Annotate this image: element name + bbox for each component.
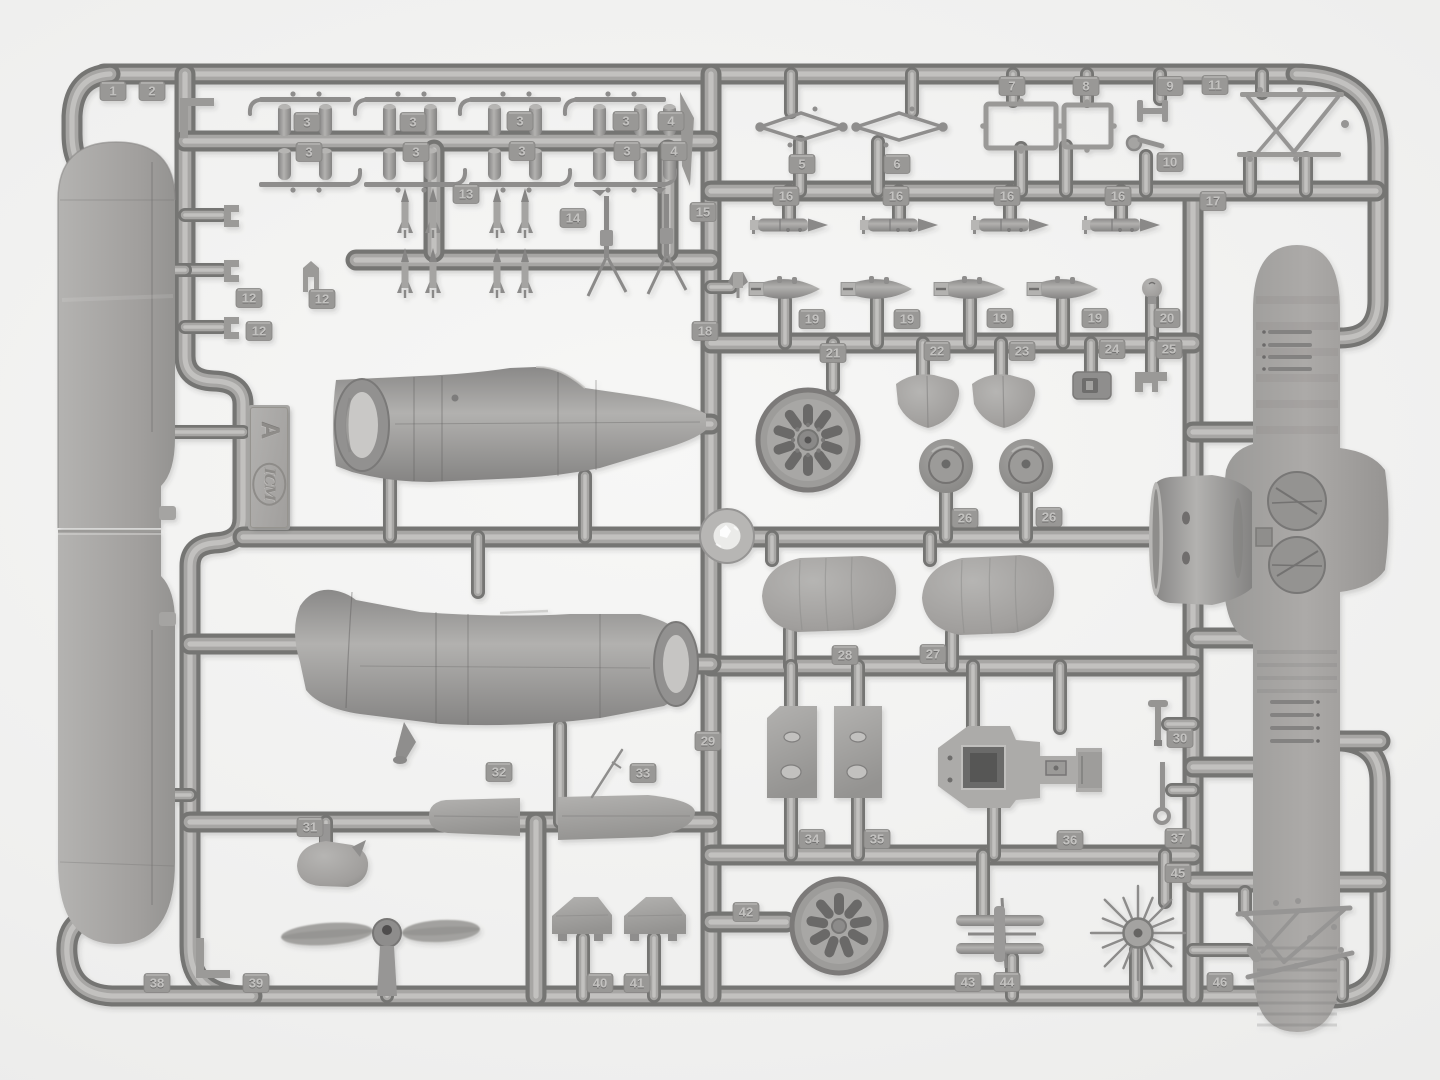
svg-text:5: 5 bbox=[798, 157, 805, 172]
svg-text:1: 1 bbox=[109, 84, 116, 99]
part-number-tag: 66 bbox=[884, 155, 910, 174]
part-number-tag: 1616 bbox=[994, 187, 1020, 206]
svg-text:19: 19 bbox=[805, 312, 819, 327]
bomb-part-19 bbox=[841, 276, 912, 299]
svg-text:36: 36 bbox=[1063, 833, 1077, 848]
svg-text:17: 17 bbox=[1206, 194, 1220, 209]
svg-text:3: 3 bbox=[409, 115, 416, 130]
sprue-frame: 1122333333333333333344441212121212121313… bbox=[0, 0, 1440, 1080]
wing-panel-lower-left bbox=[58, 506, 176, 944]
rocket-part-16 bbox=[971, 216, 1049, 234]
part-number-tag: 1919 bbox=[987, 309, 1013, 328]
part-number-tag: 3030 bbox=[1167, 729, 1193, 748]
svg-text:28: 28 bbox=[838, 648, 852, 663]
svg-text:32: 32 bbox=[492, 765, 506, 780]
engine-cowling bbox=[1149, 475, 1252, 605]
brand-plate: A ICM bbox=[250, 407, 288, 528]
svg-text:4: 4 bbox=[670, 144, 678, 159]
part-number-tag: 11 bbox=[100, 82, 126, 101]
svg-text:26: 26 bbox=[958, 511, 972, 526]
part-number-tag: 4040 bbox=[587, 974, 613, 993]
icm-logo: ICM bbox=[252, 463, 286, 506]
bomb-part-19 bbox=[749, 276, 820, 299]
part-number-tag: 44 bbox=[661, 142, 687, 161]
box-part-24 bbox=[1073, 372, 1111, 399]
part-number-tag: 2323 bbox=[1009, 342, 1035, 361]
svg-text:39: 39 bbox=[249, 976, 263, 991]
part-number-tag: 3434 bbox=[799, 830, 825, 849]
stabilizer-33 bbox=[558, 750, 695, 840]
part-number-tag: 2424 bbox=[1099, 340, 1125, 359]
part-number-tag: 2121 bbox=[820, 344, 846, 363]
svg-text:23: 23 bbox=[1015, 344, 1029, 359]
part-number-tag: 2929 bbox=[695, 732, 721, 751]
part-number-tag: 3333 bbox=[630, 764, 656, 783]
svg-text:3: 3 bbox=[303, 115, 310, 130]
part-number-tag: 1717 bbox=[1200, 192, 1226, 211]
svg-text:16: 16 bbox=[889, 189, 903, 204]
part-number-tag: 3737 bbox=[1165, 829, 1191, 848]
fuselage-half-lower bbox=[295, 590, 698, 764]
cowl-front-42 bbox=[792, 879, 886, 973]
clip-part-25 bbox=[1135, 372, 1167, 392]
svg-text:4: 4 bbox=[667, 114, 675, 129]
windscreen-frame-8 bbox=[1064, 99, 1117, 153]
part-number-tag: 1414 bbox=[560, 209, 586, 228]
svg-text:42: 42 bbox=[739, 905, 753, 920]
svg-text:16: 16 bbox=[779, 189, 793, 204]
svg-text:41: 41 bbox=[630, 976, 644, 991]
svg-text:22: 22 bbox=[930, 344, 944, 359]
part-number-tag: 1616 bbox=[883, 187, 909, 206]
part-number-tag: 3535 bbox=[864, 830, 890, 849]
part-number-tag: 1919 bbox=[799, 310, 825, 329]
svg-text:24: 24 bbox=[1105, 342, 1120, 357]
svg-text:3: 3 bbox=[516, 114, 523, 129]
part-number-tag: 1515 bbox=[690, 203, 716, 222]
svg-text:20: 20 bbox=[1160, 311, 1174, 326]
part-number-tag: 33 bbox=[294, 113, 320, 132]
svg-text:29: 29 bbox=[701, 734, 715, 749]
h-part-9 bbox=[1137, 100, 1168, 122]
part-number-tag: 2626 bbox=[1036, 508, 1062, 527]
rocket-part-16 bbox=[750, 216, 828, 234]
part-number-tag: 22 bbox=[139, 82, 165, 101]
svg-text:3: 3 bbox=[518, 144, 525, 159]
engine-star-45 bbox=[1091, 886, 1185, 980]
cowl-panel-35 bbox=[834, 706, 882, 798]
part-number-tag: 3131 bbox=[297, 818, 323, 837]
svg-text:40: 40 bbox=[593, 976, 607, 991]
svg-text:9: 9 bbox=[1166, 79, 1173, 94]
part-number-tag: 44 bbox=[658, 112, 684, 131]
blister-27 bbox=[922, 555, 1054, 635]
svg-text:33: 33 bbox=[636, 766, 650, 781]
part-number-tag: 1616 bbox=[1105, 187, 1131, 206]
rocket-part-13 bbox=[489, 188, 505, 238]
svg-text:2: 2 bbox=[148, 84, 155, 99]
strut-diamond-6 bbox=[853, 107, 946, 148]
svg-text:38: 38 bbox=[150, 976, 164, 991]
part-number-tag: 1111 bbox=[1202, 76, 1228, 95]
svg-text:43: 43 bbox=[961, 975, 975, 990]
svg-text:15: 15 bbox=[696, 205, 710, 220]
svg-text:12: 12 bbox=[252, 324, 266, 339]
part-number-tag: 4343 bbox=[955, 973, 981, 992]
fuselage-half-upper bbox=[333, 367, 706, 482]
clips-part12 bbox=[224, 205, 319, 339]
wheel-disc-21 bbox=[758, 390, 858, 490]
svg-text:25: 25 bbox=[1162, 342, 1176, 357]
svg-text:26: 26 bbox=[1042, 510, 1056, 525]
wing-panel-upper-left bbox=[58, 142, 175, 528]
part-number-tag: 2222 bbox=[924, 342, 950, 361]
bomb-part-19 bbox=[934, 276, 1005, 299]
part-number-tag: 1010 bbox=[1157, 153, 1183, 172]
part-number-tag: 55 bbox=[789, 155, 815, 174]
part-number-tag: 4646 bbox=[1207, 973, 1233, 992]
svg-text:35: 35 bbox=[870, 832, 884, 847]
svg-text:31: 31 bbox=[303, 820, 317, 835]
part-number-tag: 1313 bbox=[453, 185, 479, 204]
part-number-tag: 2626 bbox=[952, 509, 978, 528]
part-number-tag: 1919 bbox=[1082, 309, 1108, 328]
svg-text:13: 13 bbox=[459, 187, 473, 202]
svg-text:18: 18 bbox=[698, 324, 712, 339]
svg-text:14: 14 bbox=[566, 211, 581, 226]
part-number-tag: 2020 bbox=[1154, 309, 1180, 328]
svg-text:8: 8 bbox=[1082, 79, 1089, 94]
svg-text:3: 3 bbox=[305, 145, 312, 160]
svg-text:3: 3 bbox=[622, 114, 629, 129]
part-number-tag: 33 bbox=[613, 112, 639, 131]
part-number-tag: 1212 bbox=[236, 289, 262, 308]
cowl-panel-34 bbox=[767, 706, 817, 798]
svg-text:45: 45 bbox=[1171, 866, 1185, 881]
rocket-part-16 bbox=[860, 216, 938, 234]
part-number-tag: 33 bbox=[400, 113, 426, 132]
part-number-tag: 3232 bbox=[486, 763, 512, 782]
part-number-tag: 33 bbox=[614, 142, 640, 161]
svg-text:11: 11 bbox=[1208, 78, 1222, 93]
rocket-part-16 bbox=[1082, 216, 1160, 234]
part-number-tag: 1212 bbox=[246, 322, 272, 341]
part-number-tag: 4545 bbox=[1165, 864, 1191, 883]
strut-diamond-5 bbox=[757, 107, 846, 148]
part-number-tag: 33 bbox=[509, 142, 535, 161]
sprue-photo: 1122333333333333333344441212121212121313… bbox=[0, 0, 1440, 1080]
bomb-part-19 bbox=[1027, 276, 1098, 299]
sprue-letter: A bbox=[255, 421, 284, 439]
part-number-tag: 1212 bbox=[309, 290, 335, 309]
part-number-tag: 88 bbox=[1073, 77, 1099, 96]
svg-text:16: 16 bbox=[1000, 189, 1014, 204]
rocket-part-13 bbox=[517, 188, 533, 238]
svg-text:19: 19 bbox=[900, 312, 914, 327]
part-number-tag: 3939 bbox=[243, 974, 269, 993]
cockpit-floor-36 bbox=[938, 726, 1102, 808]
part-number-tag: 33 bbox=[403, 143, 429, 162]
propeller bbox=[280, 918, 480, 996]
part-number-tag: 1616 bbox=[773, 187, 799, 206]
part-number-tag: 2828 bbox=[832, 646, 858, 665]
svg-text:21: 21 bbox=[826, 346, 840, 361]
wheel-part-26 bbox=[999, 439, 1053, 493]
svg-text:44: 44 bbox=[1000, 975, 1015, 990]
wheel-lever-10 bbox=[1127, 136, 1162, 150]
svg-text:3: 3 bbox=[623, 144, 630, 159]
part-number-tag: 1818 bbox=[692, 322, 718, 341]
svg-text:46: 46 bbox=[1213, 975, 1227, 990]
svg-text:27: 27 bbox=[926, 647, 940, 662]
fairing-22 bbox=[896, 374, 959, 428]
svg-text:34: 34 bbox=[805, 832, 820, 847]
part-number-tag: 99 bbox=[1157, 77, 1183, 96]
part-number-tag: 2525 bbox=[1156, 340, 1182, 359]
part-number-tag: 4444 bbox=[994, 973, 1020, 992]
rocket-part-13 bbox=[397, 188, 413, 238]
strut-triangle-11 bbox=[1237, 87, 1349, 162]
part-number-tag: 1919 bbox=[894, 310, 920, 329]
part-number-tag: 33 bbox=[296, 143, 322, 162]
part-number-tag: 4242 bbox=[733, 903, 759, 922]
part-number-tag: 4141 bbox=[624, 974, 650, 993]
svg-text:37: 37 bbox=[1171, 831, 1185, 846]
stabilizer-32 bbox=[429, 798, 520, 836]
blister-28 bbox=[762, 556, 896, 632]
part-number-tag: 3838 bbox=[144, 974, 170, 993]
part-number-tag: 77 bbox=[999, 77, 1025, 96]
svg-text:12: 12 bbox=[242, 291, 256, 306]
svg-text:12: 12 bbox=[315, 292, 329, 307]
part-number-tag: 3636 bbox=[1057, 831, 1083, 850]
svg-text:3: 3 bbox=[412, 145, 419, 160]
svg-text:30: 30 bbox=[1173, 731, 1187, 746]
injection-gate bbox=[700, 509, 754, 563]
svg-text:7: 7 bbox=[1008, 79, 1015, 94]
fairing-23 bbox=[972, 374, 1035, 428]
svg-text:19: 19 bbox=[993, 311, 1007, 326]
part-number-tag: 2727 bbox=[920, 645, 946, 664]
svg-text:10: 10 bbox=[1163, 155, 1177, 170]
svg-text:16: 16 bbox=[1111, 189, 1125, 204]
svg-text:19: 19 bbox=[1088, 311, 1102, 326]
struts-43-44 bbox=[956, 898, 1044, 968]
wheel-part-26 bbox=[919, 439, 973, 493]
svg-text:6: 6 bbox=[893, 157, 900, 172]
l-bracket-bottom bbox=[196, 938, 230, 978]
part-number-tag: 33 bbox=[507, 112, 533, 131]
